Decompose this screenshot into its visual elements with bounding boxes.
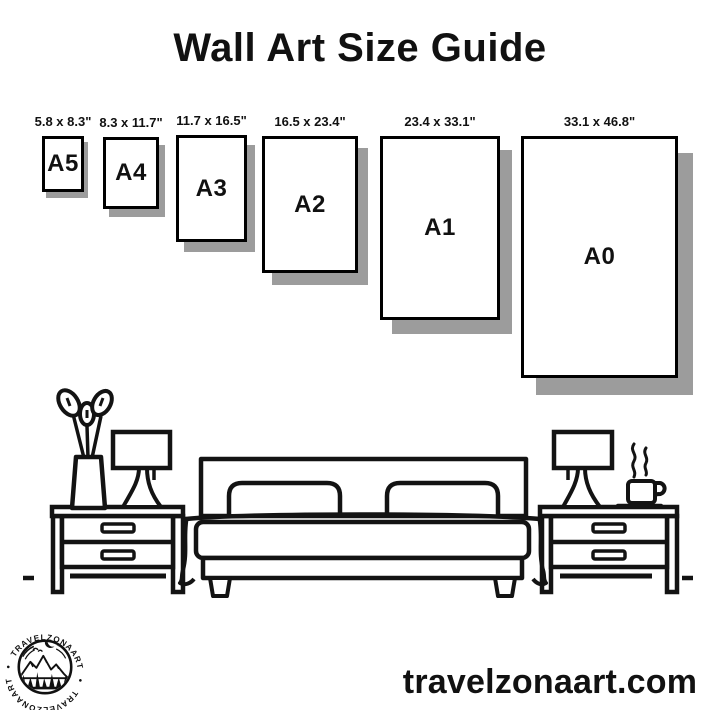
size-rect-a1: A1 (380, 136, 500, 320)
coffee-cup (618, 444, 665, 506)
logo-dot-right: • (74, 677, 86, 683)
size-dimensions-a3: 11.7 x 16.5" (176, 113, 247, 128)
size-dimensions-a2: 16.5 x 23.4" (274, 114, 345, 129)
size-item-a0: 33.1 x 46.8" A0 (521, 136, 678, 378)
bed-base (203, 558, 522, 578)
size-rect-a0: A0 (521, 136, 678, 378)
bed-foot-left (210, 578, 230, 596)
size-dimensions-a4: 8.3 x 11.7" (99, 115, 162, 130)
size-rect-a5: A5 (42, 136, 84, 192)
size-code-a1: A1 (424, 214, 456, 242)
vase-plant (54, 386, 116, 508)
mattress (196, 522, 529, 558)
size-dimensions-a1: 23.4 x 33.1" (404, 114, 475, 129)
brand-logo-badge: TRAVELZONAART TRAVELZONAART • • (2, 624, 88, 710)
size-rect-a2: A2 (262, 136, 358, 273)
bedroom-illustration (0, 380, 720, 605)
nightstand-left (52, 507, 183, 592)
size-item-a1: 23.4 x 33.1" A1 (380, 136, 500, 320)
table-lamp-left (113, 432, 170, 507)
size-code-a5: A5 (47, 150, 79, 178)
size-code-a3: A3 (196, 175, 228, 203)
pillow-left (229, 483, 340, 516)
size-dimensions-a0: 33.1 x 46.8" (564, 114, 635, 129)
bed (180, 459, 546, 596)
pillow-right (387, 483, 498, 516)
size-guide-page: Wall Art Size Guide 5.8 x 8.3" A5 8.3 x … (0, 0, 720, 720)
logo-dot-left: • (3, 663, 15, 669)
page-title: Wall Art Size Guide (0, 26, 720, 71)
size-rect-a4: A4 (103, 137, 159, 209)
bedroom-scene-svg (0, 380, 720, 605)
brand-logo-svg: TRAVELZONAART TRAVELZONAART • • (2, 624, 88, 710)
size-item-a4: 8.3 x 11.7" A4 (103, 137, 159, 209)
size-item-a5: 5.8 x 8.3" A5 (42, 136, 84, 192)
size-code-a4: A4 (115, 159, 147, 187)
bed-foot-right (495, 578, 515, 596)
size-dimensions-a5: 5.8 x 8.3" (35, 114, 92, 129)
size-item-a3: 11.7 x 16.5" A3 (176, 135, 247, 242)
table-lamp-right (554, 432, 612, 507)
size-item-a2: 16.5 x 23.4" A2 (262, 136, 358, 273)
website-wordmark: travelzonaart.com (380, 663, 720, 702)
nightstand-right (540, 507, 677, 592)
size-code-a2: A2 (294, 191, 326, 219)
size-code-a0: A0 (584, 243, 616, 271)
size-rect-a3: A3 (176, 135, 247, 242)
